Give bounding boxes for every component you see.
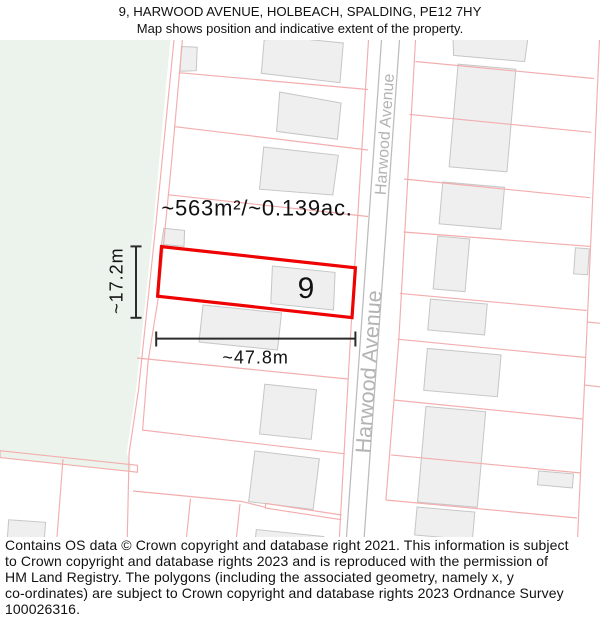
svg-text:~47.8m: ~47.8m: [222, 348, 289, 368]
svg-text:9: 9: [298, 272, 315, 305]
svg-text:Harwood Avenue: Harwood Avenue: [351, 289, 386, 454]
svg-text:~563m²/~0.139ac.: ~563m²/~0.139ac.: [161, 196, 352, 221]
svg-text:~17.2m: ~17.2m: [106, 247, 126, 314]
svg-text:Harwood Avenue: Harwood Avenue: [373, 73, 398, 196]
